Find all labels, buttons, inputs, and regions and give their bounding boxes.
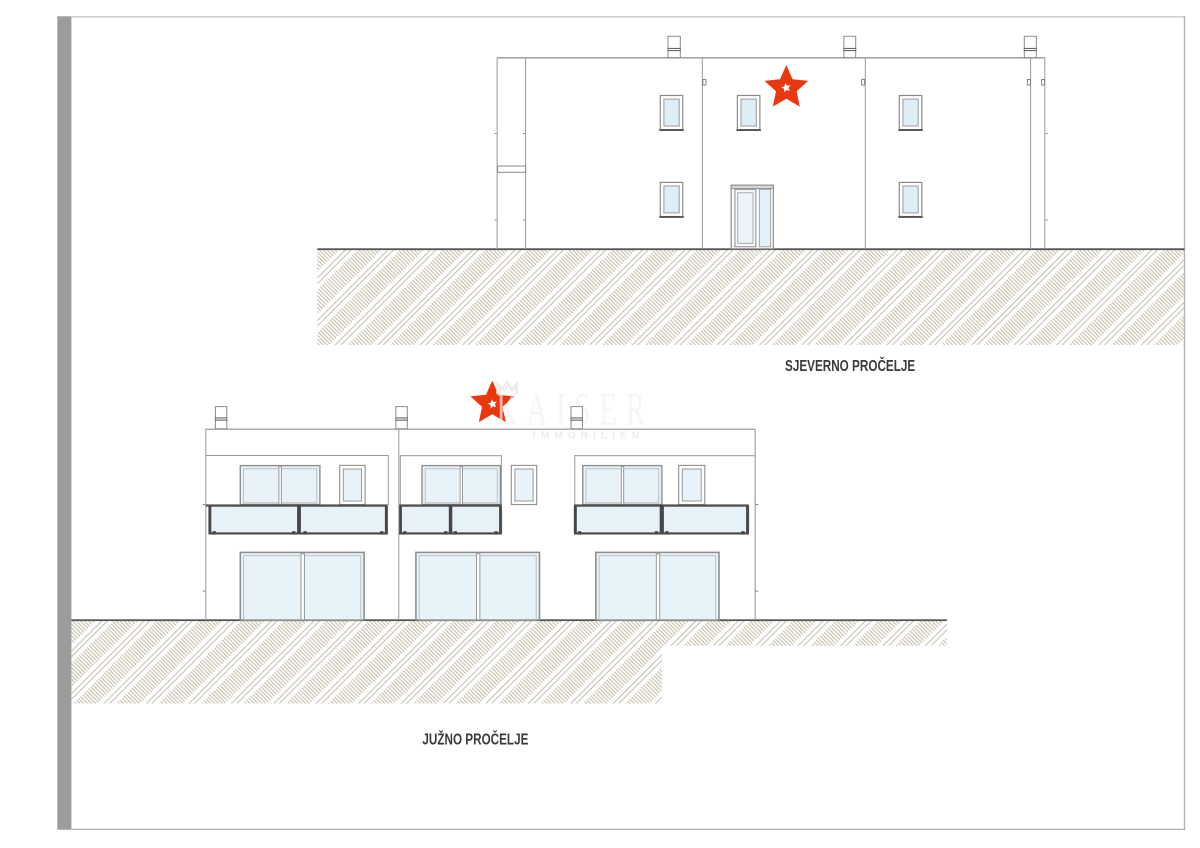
svg-text:JUŽNO PROČELJE: JUŽNO PROČELJE — [422, 729, 528, 748]
svg-text:IMMOBILIEN: IMMOBILIEN — [533, 431, 644, 442]
svg-text:SJEVERNO PROČELJE: SJEVERNO PROČELJE — [785, 356, 915, 375]
